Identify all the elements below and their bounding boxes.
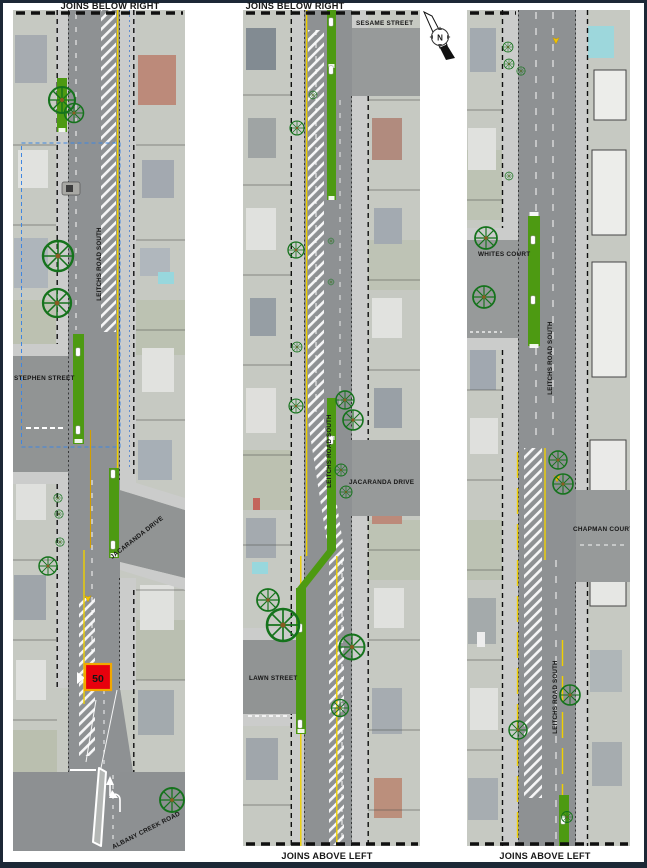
- bus-stop-icon: [111, 541, 115, 549]
- chapman-court-road: [576, 490, 630, 582]
- bus-stop-icon: [531, 236, 535, 244]
- road-label-leitchs-3b: LEITCHS ROAD SOUTH: [552, 660, 559, 734]
- plan-panel-2: SESAME STREET LEITCHS ROAD SOUTH JACARAN…: [243, 10, 420, 846]
- street-label-chapman: CHAPMAN COURT: [573, 526, 633, 533]
- joins-below-right-label-1: JOINS BELOW RIGHT: [61, 1, 160, 11]
- north-arrow-letter: N: [437, 34, 443, 43]
- joins-above-left-label-2: JOINS ABOVE LEFT: [281, 851, 372, 861]
- street-label-lawn: LAWN STREET: [249, 675, 298, 682]
- street-label-jacaranda-2: JACARANDA DRIVE: [349, 479, 415, 486]
- road-label-leitchs-1: LEITCHS ROAD SOUTH: [96, 227, 103, 301]
- bus-stop-icon: [76, 426, 80, 434]
- legend-chip-icon: [62, 182, 80, 195]
- street-label-whites: WHITES COURT: [478, 251, 530, 258]
- bus-stop-icon: [531, 296, 535, 304]
- bus-stop-icon: [298, 720, 302, 728]
- chevron-hatch-3: [524, 448, 542, 798]
- speed-limit-value: 50: [92, 673, 104, 685]
- sesame-street-road: [352, 28, 420, 96]
- plan-panel-3: WHITES COURT LEITCHS ROAD SOUTH CHAPMAN …: [467, 10, 633, 846]
- jacaranda-drive-road-2: [352, 440, 420, 516]
- chevron-hatch-1a: [101, 10, 116, 332]
- joins-above-left-label-3: JOINS ABOVE LEFT: [499, 851, 590, 861]
- page-border-bottom: [0, 862, 647, 868]
- road-label-leitchs-3a: LEITCHS ROAD SOUTH: [547, 321, 554, 395]
- bus-stop-icon: [329, 18, 333, 26]
- joins-below-right-label-2: JOINS BELOW RIGHT: [246, 1, 345, 11]
- bus-stop-icon: [329, 66, 333, 74]
- plan-sheet: 50 STEPHEN STREET LEITCHS ROAD SOUTH JAC…: [0, 0, 647, 868]
- bus-stop-icon: [111, 470, 115, 478]
- street-label-sesame: SESAME STREET: [356, 20, 413, 27]
- roadworks-plan-drawing: 50 STEPHEN STREET LEITCHS ROAD SOUTH JAC…: [0, 0, 647, 868]
- plan-panel-1: 50 STEPHEN STREET LEITCHS ROAD SOUTH JAC…: [13, 10, 185, 851]
- bus-stop-icon: [76, 348, 80, 356]
- street-label-stephen: STEPHEN STREET: [14, 375, 75, 382]
- road-label-leitchs-2: LEITCHS ROAD SOUTH: [326, 414, 333, 488]
